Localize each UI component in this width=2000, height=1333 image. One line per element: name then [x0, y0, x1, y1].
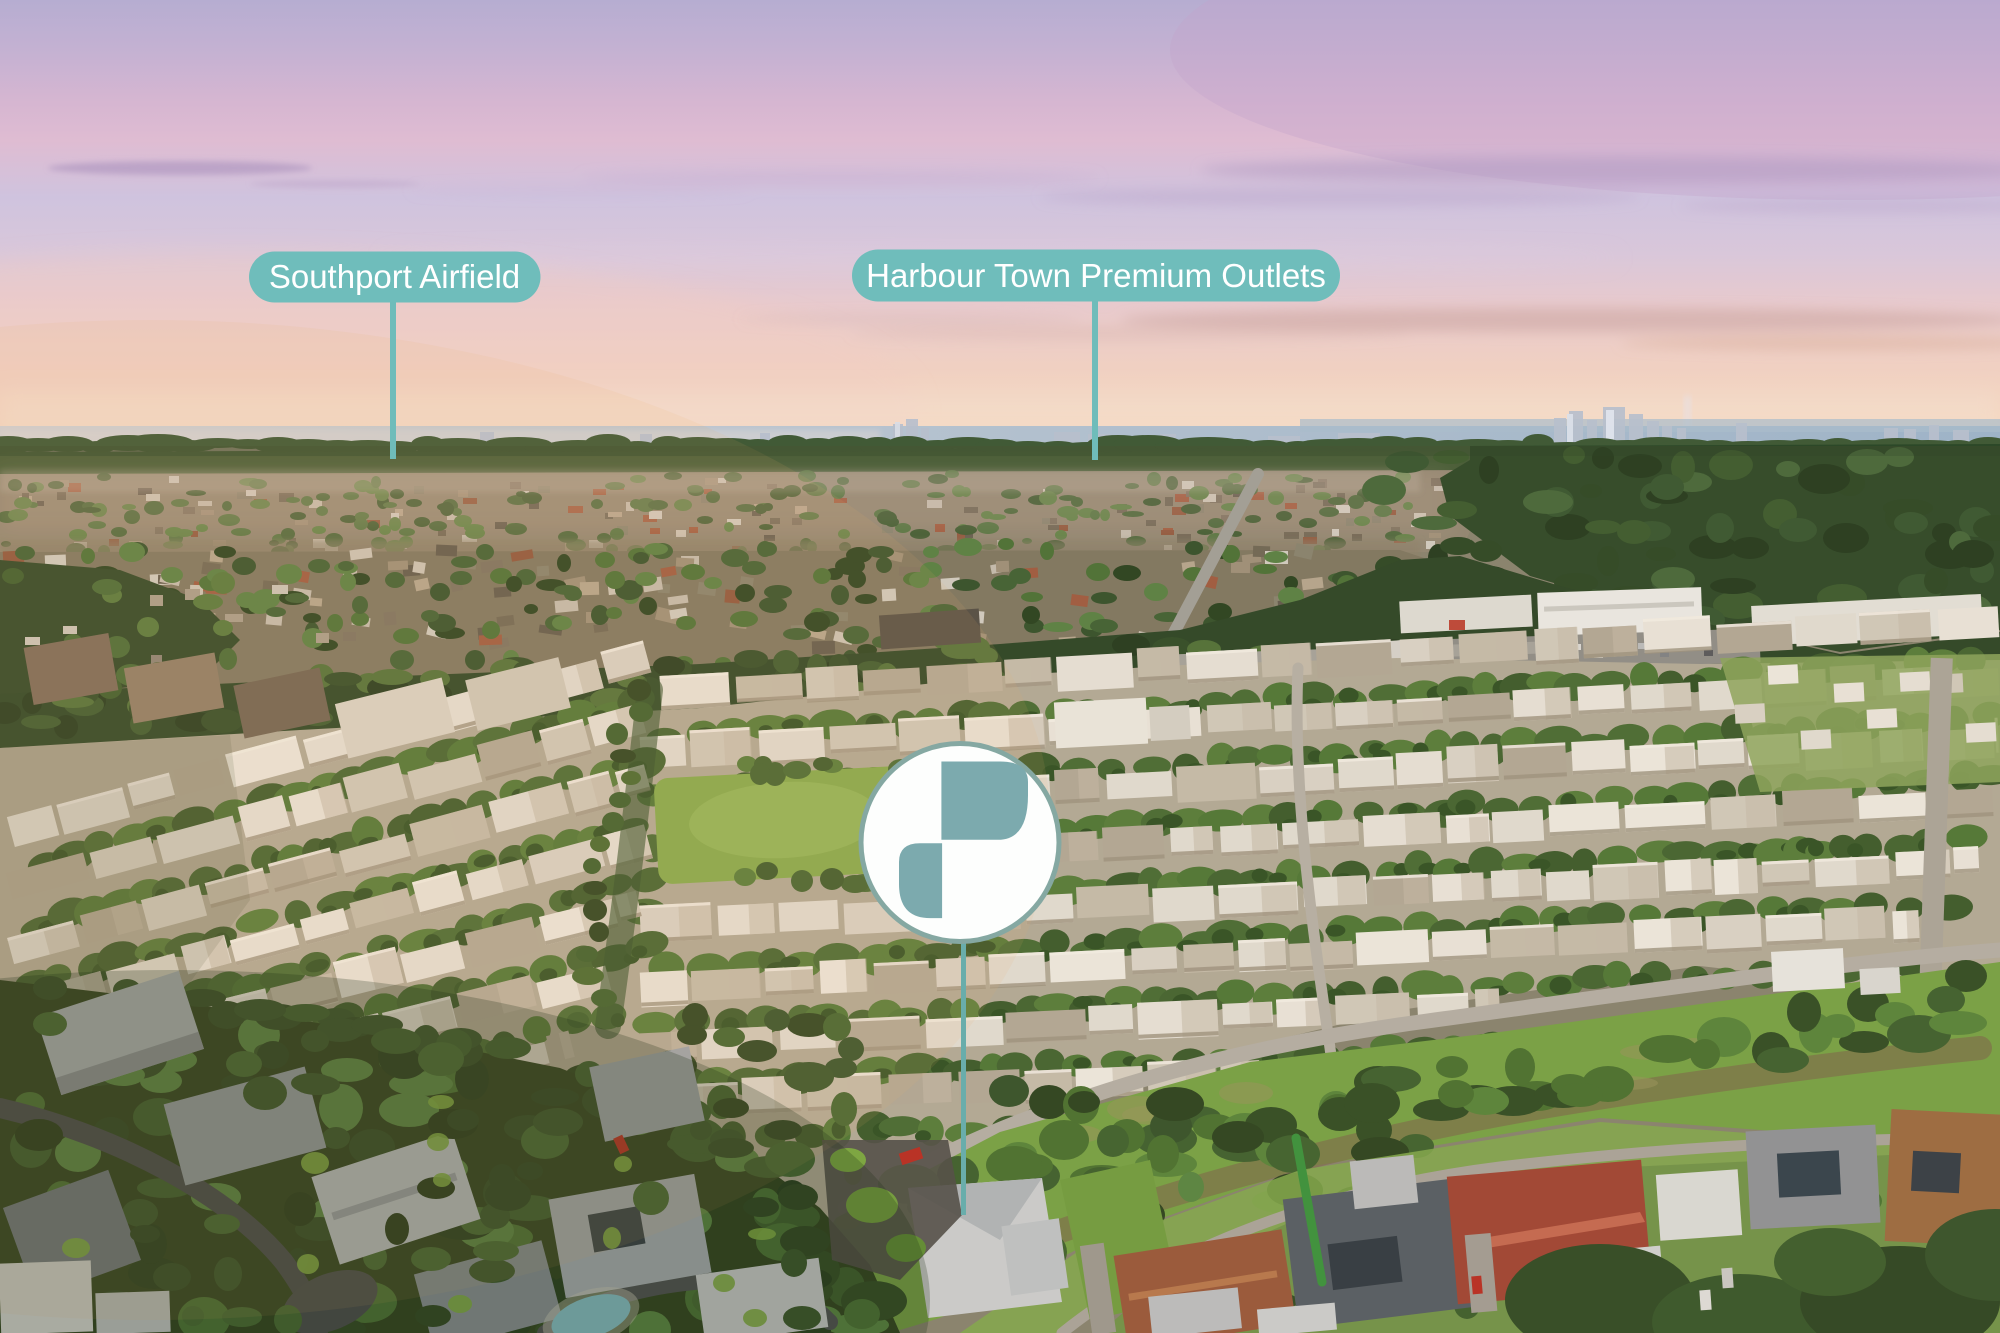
svg-text:Harbour Town Premium Outlets: Harbour Town Premium Outlets — [866, 257, 1326, 294]
svg-text:Southport Airfield: Southport Airfield — [269, 258, 520, 295]
